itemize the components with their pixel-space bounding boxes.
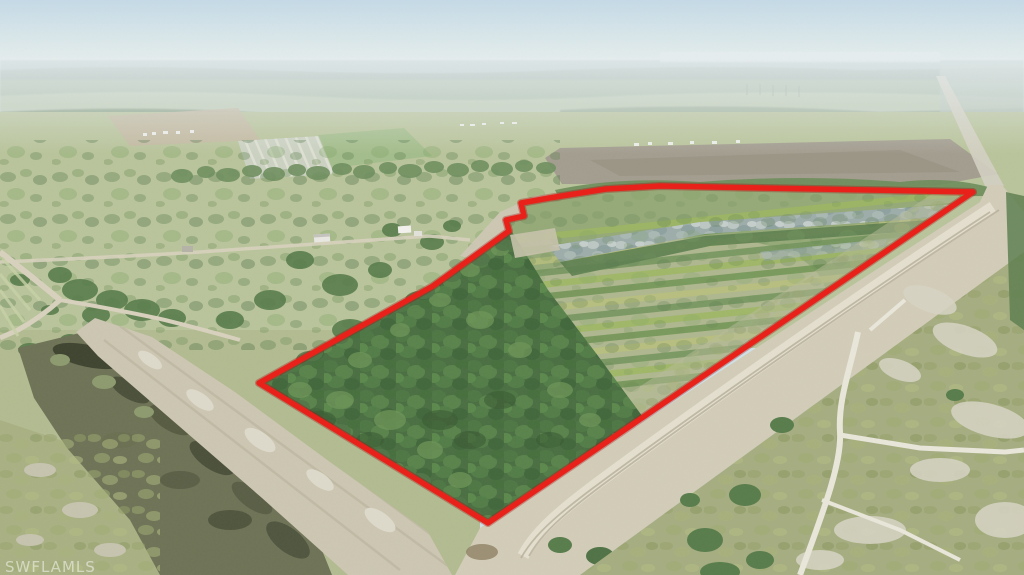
- photo-grain: [0, 0, 1024, 575]
- watermark: SWFLAMLS: [5, 558, 96, 575]
- aerial-photo: SWFLAMLS: [0, 0, 1024, 575]
